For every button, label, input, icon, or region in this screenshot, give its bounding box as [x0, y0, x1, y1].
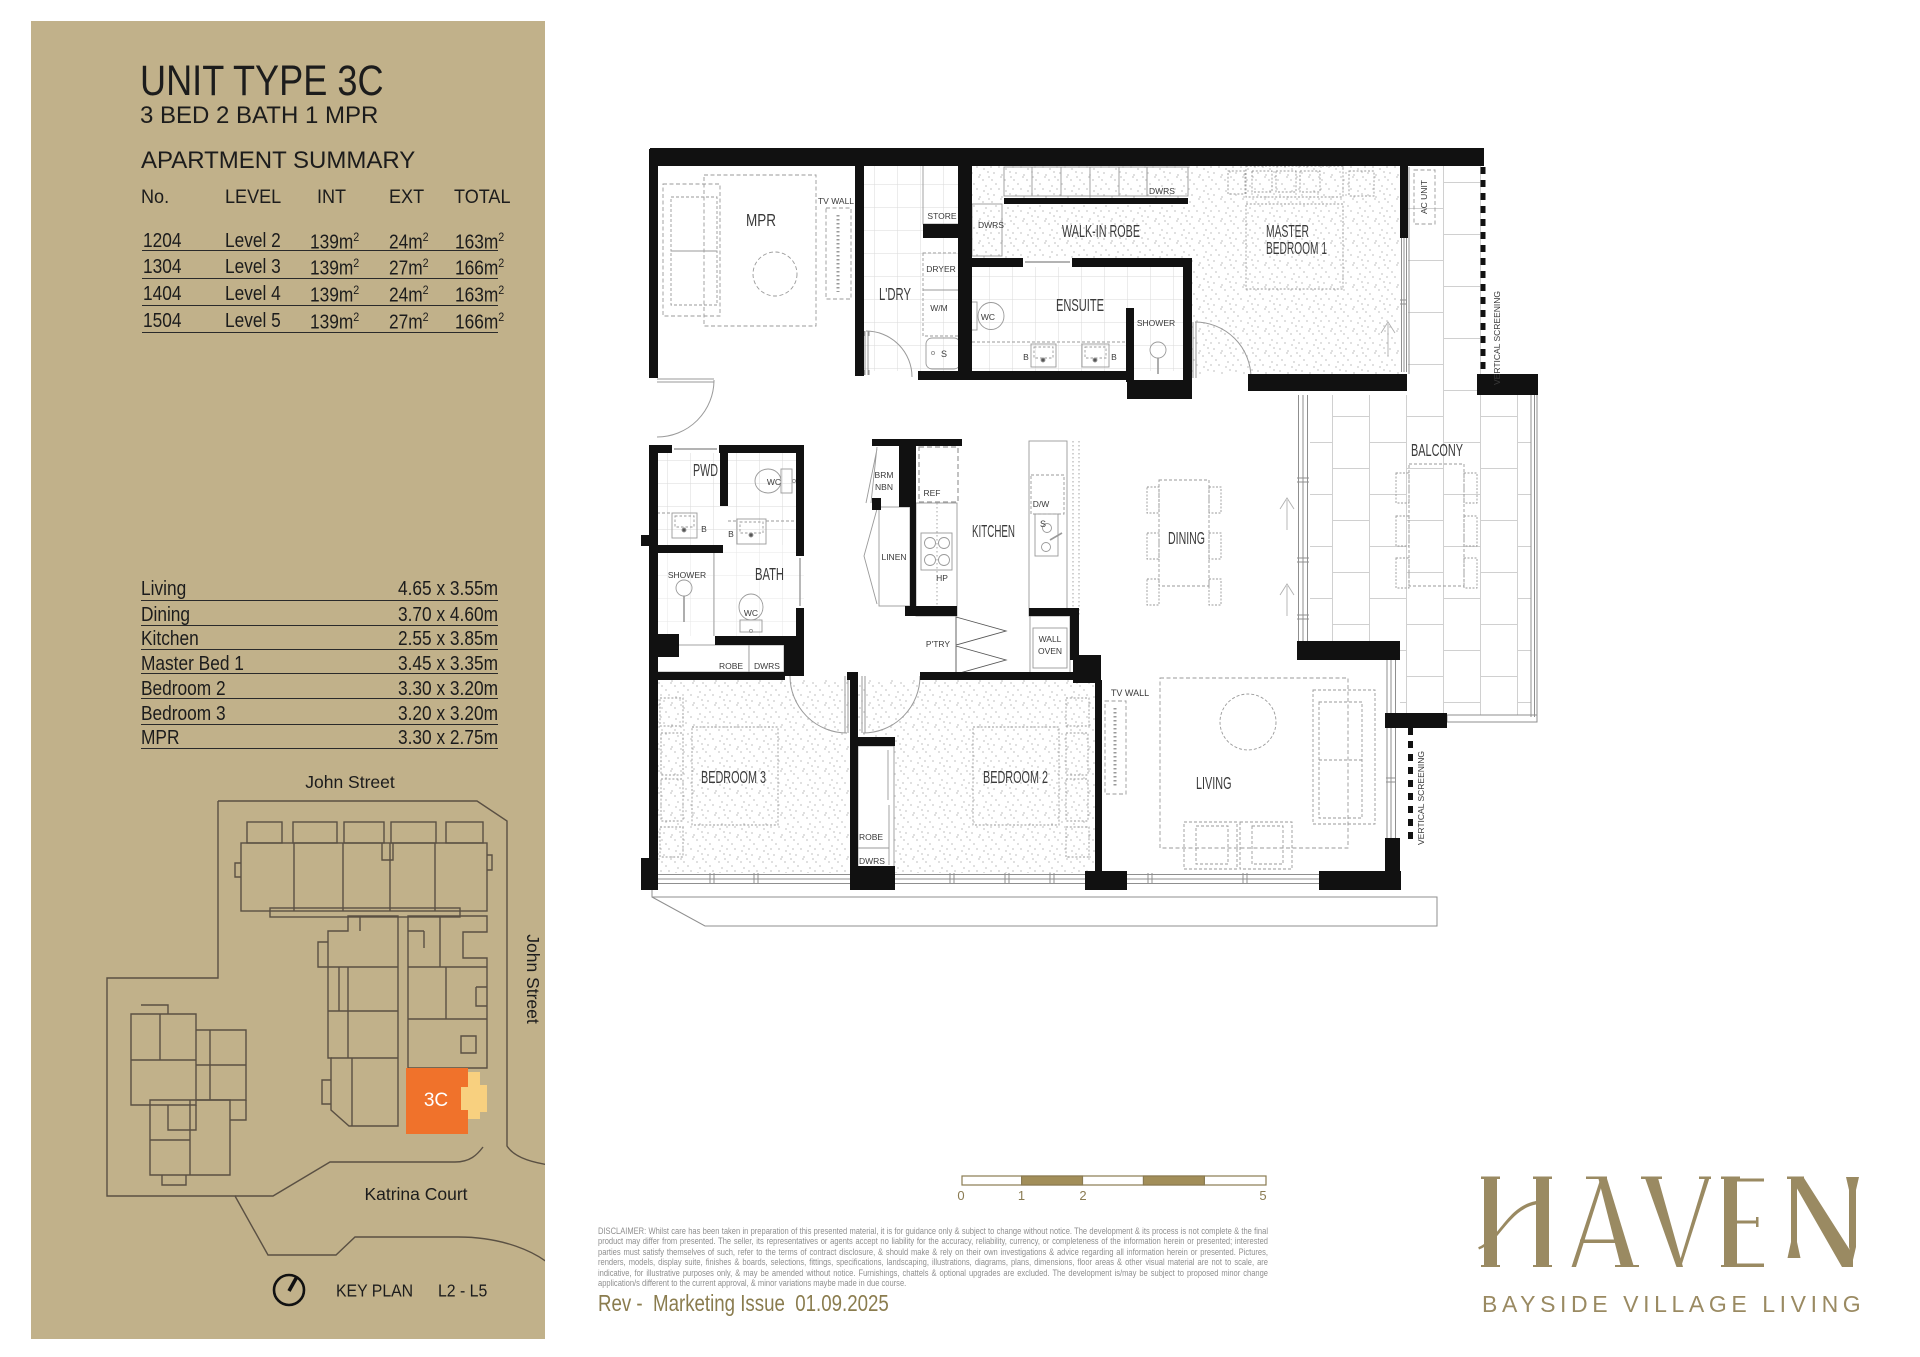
svg-text:MPR: MPR	[746, 210, 776, 230]
svg-text:WC: WC	[744, 608, 758, 618]
svg-text:ROBE: ROBE	[719, 661, 743, 671]
svg-text:D/W: D/W	[1033, 499, 1050, 509]
svg-text:S: S	[1040, 519, 1046, 529]
svg-text:B: B	[1023, 352, 1029, 362]
svg-text:TV WALL: TV WALL	[818, 196, 854, 206]
svg-text:2: 2	[1079, 1188, 1086, 1203]
svg-text:John Street: John Street	[305, 772, 395, 792]
svg-text:BATH: BATH	[755, 564, 784, 584]
svg-text:L'DRY: L'DRY	[879, 284, 911, 304]
svg-text:WC: WC	[981, 312, 995, 322]
svg-text:DWRS: DWRS	[978, 220, 1004, 230]
svg-text:W/M: W/M	[930, 303, 947, 313]
svg-text:DWRS: DWRS	[1149, 186, 1175, 196]
svg-text:BAYSIDE VILLAGE LIVING: BAYSIDE VILLAGE LIVING	[1482, 1291, 1865, 1317]
svg-text:L2 - L5: L2 - L5	[438, 1281, 487, 1301]
svg-text:DRYER: DRYER	[926, 264, 956, 274]
svg-text:HP: HP	[936, 573, 948, 583]
svg-text:John Street: John Street	[523, 934, 543, 1024]
svg-text:WALK-IN ROBE: WALK-IN ROBE	[1062, 221, 1140, 241]
svg-text:STORE: STORE	[927, 211, 956, 221]
svg-text:SHOWER: SHOWER	[1137, 318, 1175, 328]
svg-text:1: 1	[1018, 1188, 1025, 1203]
svg-text:B: B	[1111, 352, 1117, 362]
svg-text:BRM: BRM	[875, 470, 894, 480]
svg-text:VERTICAL SCREENING: VERTICAL SCREENING	[1492, 291, 1502, 385]
svg-text:5: 5	[1259, 1188, 1266, 1203]
svg-text:TV WALL: TV WALL	[1111, 688, 1149, 698]
svg-text:PWD: PWD	[693, 460, 718, 480]
svg-text:OVEN: OVEN	[1038, 646, 1062, 656]
svg-text:WC: WC	[767, 477, 781, 487]
svg-text:3C: 3C	[424, 1090, 448, 1111]
svg-text:NBN: NBN	[875, 482, 893, 492]
svg-text:KITCHEN: KITCHEN	[972, 521, 1015, 541]
svg-text:AC UNIT: AC UNIT	[1419, 180, 1429, 214]
svg-text:BEDROOM 1: BEDROOM 1	[1266, 238, 1327, 258]
svg-text:0: 0	[957, 1188, 964, 1203]
svg-text:DINING: DINING	[1168, 528, 1205, 548]
svg-text:B: B	[701, 524, 707, 534]
svg-text:SHOWER: SHOWER	[668, 570, 706, 580]
svg-text:S: S	[941, 349, 947, 359]
svg-text:ENSUITE: ENSUITE	[1056, 295, 1104, 315]
svg-text:KEY PLAN: KEY PLAN	[336, 1281, 413, 1301]
svg-text:BEDROOM 2: BEDROOM 2	[983, 767, 1048, 787]
svg-text:BALCONY: BALCONY	[1411, 440, 1463, 460]
svg-text:LIVING: LIVING	[1196, 773, 1232, 793]
svg-text:BEDROOM 3: BEDROOM 3	[701, 767, 766, 787]
svg-text:REF: REF	[924, 488, 941, 498]
svg-text:B: B	[728, 529, 734, 539]
svg-text:Katrina Court: Katrina Court	[364, 1184, 467, 1204]
svg-text:VERTICAL SCREENING: VERTICAL SCREENING	[1416, 751, 1426, 845]
svg-text:ROBE: ROBE	[859, 832, 883, 842]
svg-text:WALL: WALL	[1039, 634, 1062, 644]
svg-text:P'TRY: P'TRY	[926, 639, 950, 649]
svg-text:DWRS: DWRS	[754, 661, 780, 671]
svg-text:DWRS: DWRS	[859, 856, 885, 866]
svg-text:LINEN: LINEN	[881, 552, 906, 562]
